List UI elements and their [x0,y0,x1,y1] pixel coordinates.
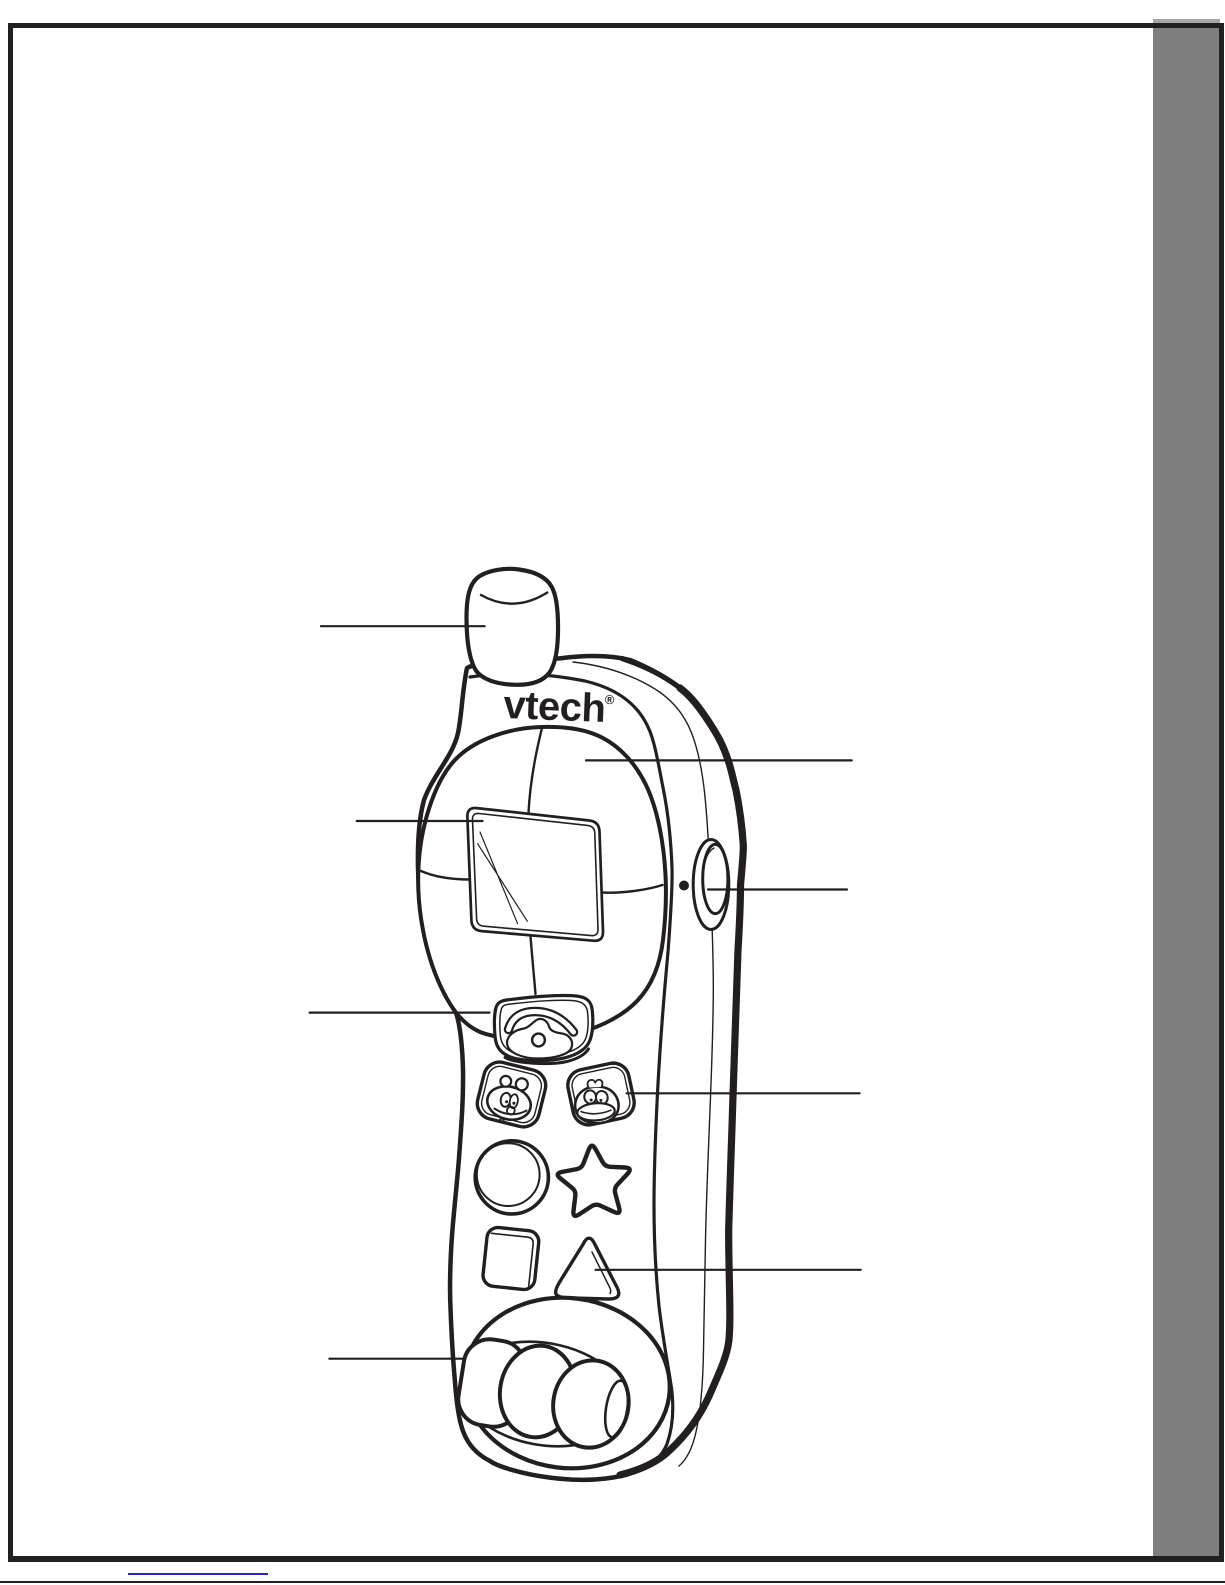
svg-text:vtech: vtech [503,683,607,731]
svg-text:®: ® [605,692,616,707]
